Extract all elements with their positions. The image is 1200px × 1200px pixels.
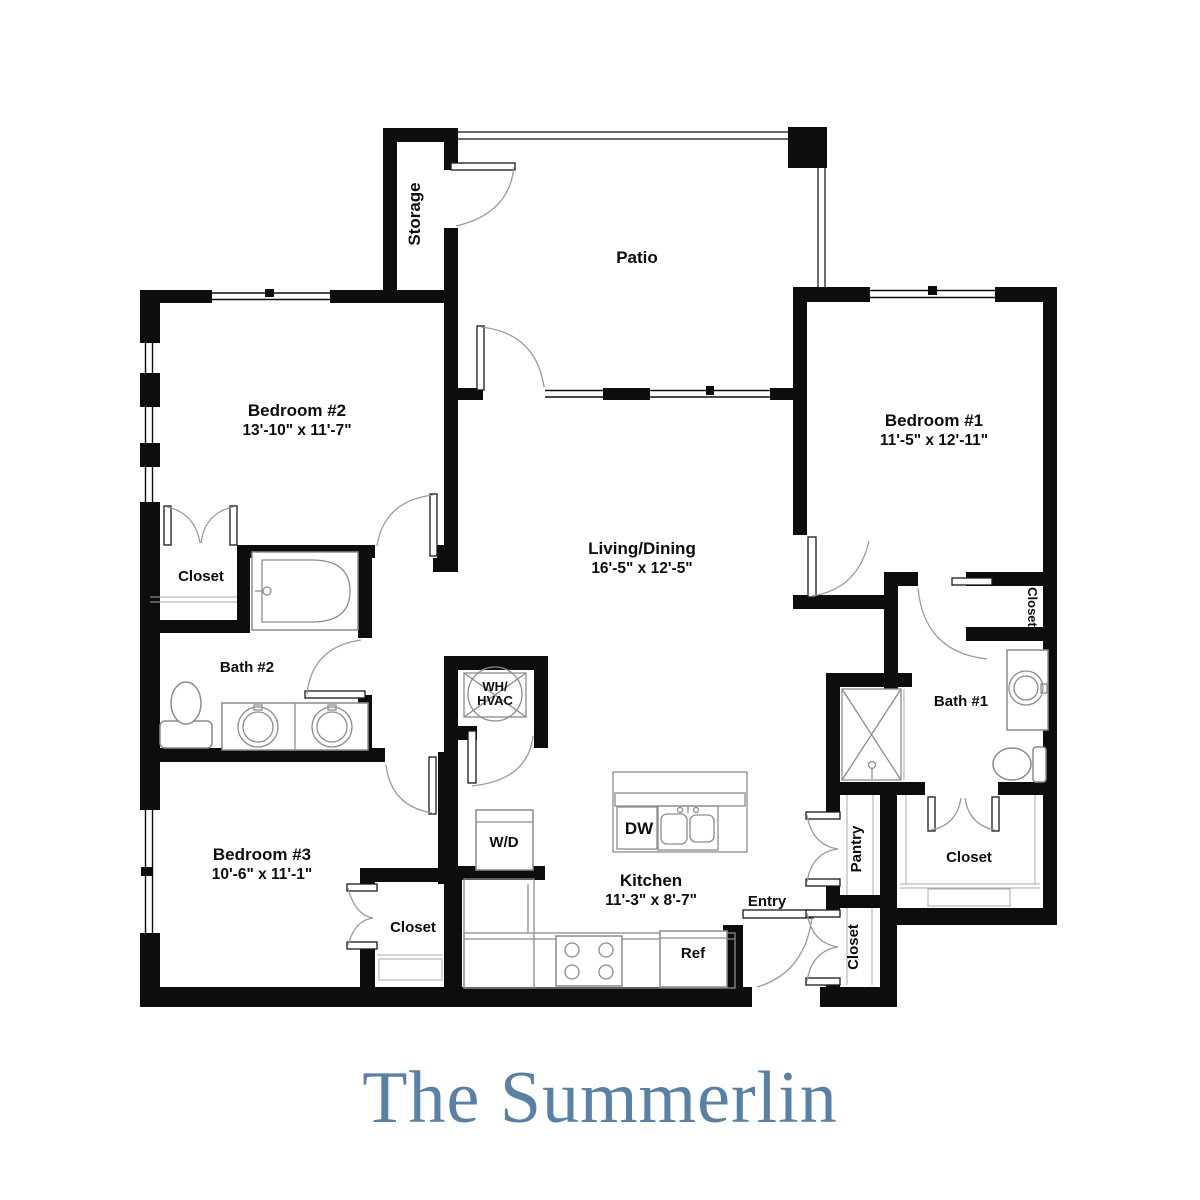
bedroom2-closet-rod (150, 597, 237, 602)
refrigerator-label: Ref (681, 945, 706, 962)
kitchen-dims: 11'-3" x 8'-7" (605, 892, 697, 909)
bedroom2-label: Bedroom #2 (248, 401, 346, 420)
bedroom2-closet-label: Closet (178, 568, 224, 585)
shower (842, 689, 904, 780)
bedroom2-door (377, 494, 437, 556)
storage-label: Storage (405, 182, 424, 245)
bath2-label: Bath #2 (220, 659, 274, 676)
bedroom3-dims: 10'-6" x 11'-1" (212, 866, 313, 883)
washer-dryer-label: W/D (489, 834, 518, 851)
entry-closet-label: Closet (845, 924, 862, 970)
range-stove (556, 936, 622, 986)
bath1-toilet (993, 747, 1046, 782)
bath1-door (918, 578, 992, 659)
bedroom3-closet-label: Closet (390, 919, 436, 936)
floor-plan-page: Storage Patio Bedroom #2 13'-10" x 11'-7… (0, 0, 1200, 1200)
patio-label: Patio (616, 248, 658, 267)
front-door (743, 910, 813, 987)
bath2-door (305, 640, 365, 698)
wh-hvac-door (468, 731, 533, 786)
living-dining-dims: 16'-5" x 12'-5" (591, 560, 692, 577)
bedroom1-door (808, 537, 869, 597)
bedroom3-closet-doors (347, 884, 377, 949)
pantry-doors (806, 812, 840, 886)
pantry-label: Pantry (848, 825, 865, 872)
bedroom3-door (386, 757, 436, 814)
bedroom2-dims: 13'-10" x 11'-7" (242, 422, 351, 439)
bath1-closet-label: Closet (1025, 587, 1040, 627)
wh-hvac-label-line2: HVAC (477, 693, 513, 708)
bedroom2-closet-doors (164, 506, 237, 545)
windows (141, 132, 995, 933)
bath1-vanity (1007, 650, 1048, 730)
bedroom1-label: Bedroom #1 (885, 411, 983, 430)
plan-title: The Summerlin (362, 1057, 837, 1139)
patio-door (477, 326, 544, 390)
bedroom3-closet-shelf (377, 955, 443, 980)
bath1-label: Bath #1 (934, 693, 988, 710)
bathtub (252, 552, 358, 630)
entry-label: Entry (748, 893, 787, 910)
living-dining-label: Living/Dining (588, 539, 696, 558)
bath2-vanity (222, 703, 368, 750)
floor-plan-drawing: Storage Patio Bedroom #2 13'-10" x 11'-7… (0, 0, 1200, 1200)
walkin-closet-label: Closet (946, 849, 992, 866)
kitchen-island (613, 772, 747, 852)
kitchen-label: Kitchen (620, 871, 682, 890)
bath2-toilet (160, 682, 212, 748)
storage-door (451, 163, 515, 226)
dishwasher-label: DW (625, 819, 654, 838)
wh-hvac-label-line1: WH/ (482, 679, 508, 694)
bedroom3-label: Bedroom #3 (213, 845, 311, 864)
walkin-closet-doors (928, 797, 999, 831)
bedroom1-dims: 11'-5" x 12'-11" (880, 432, 988, 449)
